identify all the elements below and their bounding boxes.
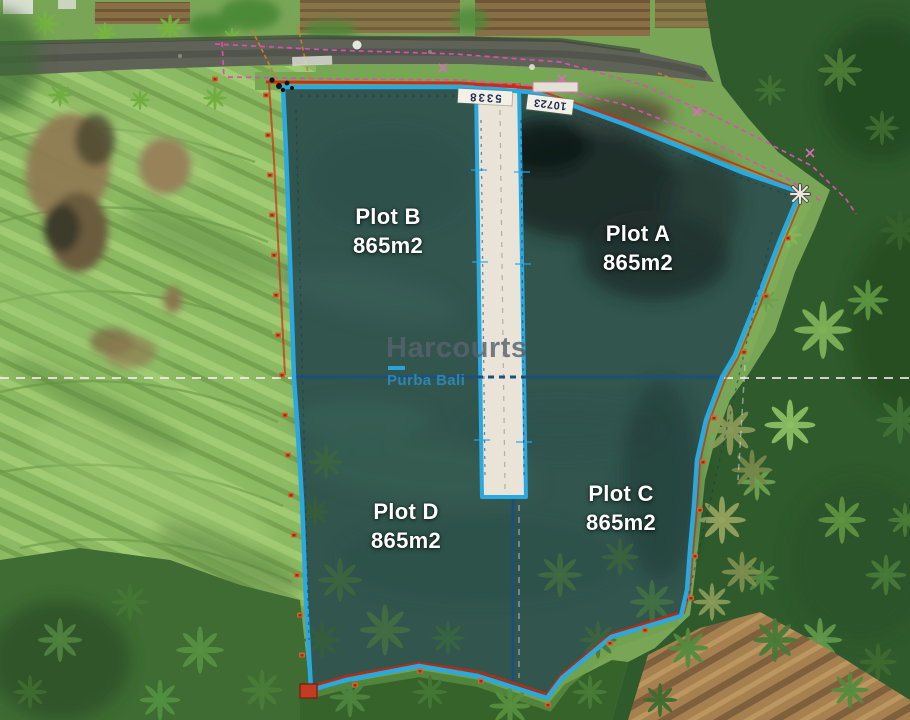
plot-a-name: Plot A bbox=[603, 219, 673, 248]
plot-b-area: 865m2 bbox=[353, 231, 423, 260]
plot-b-label: Plot B 865m2 bbox=[353, 202, 423, 260]
corner-red-marker bbox=[300, 684, 317, 698]
watermark-underline-bar bbox=[388, 366, 405, 370]
plot-b-name: Plot B bbox=[353, 202, 423, 231]
plot-a-area: 865m2 bbox=[603, 248, 673, 277]
aerial-plot-map: Plot B 865m2 Plot A 865m2 Plot D 865m2 P… bbox=[0, 0, 910, 720]
plot-d-label: Plot D 865m2 bbox=[371, 497, 441, 555]
harcourts-watermark: Harcourts Purba Bali bbox=[386, 332, 528, 389]
corner-star-marker bbox=[791, 185, 809, 203]
boundary-sign bbox=[533, 82, 578, 92]
plot-c-name: Plot C bbox=[586, 479, 656, 508]
watermark-subbrand: Purba Bali bbox=[387, 372, 528, 389]
plot-c-area: 865m2 bbox=[586, 508, 656, 537]
plot-a-label: Plot A 865m2 bbox=[603, 219, 673, 277]
plot-c-label: Plot C 865m2 bbox=[586, 479, 656, 537]
plot-d-area: 865m2 bbox=[371, 526, 441, 555]
watermark-brand: Harcourts bbox=[386, 332, 528, 365]
roadside-sign bbox=[292, 56, 332, 66]
plot-d-name: Plot D bbox=[371, 497, 441, 526]
parcel-tag-5338: 5338 bbox=[458, 89, 513, 106]
